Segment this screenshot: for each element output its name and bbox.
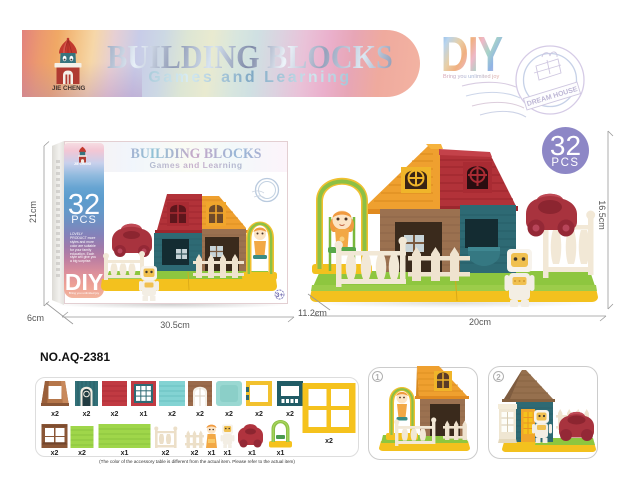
svg-text:x1: x1 (276, 450, 284, 457)
svg-text:x2: x2 (225, 411, 233, 418)
svg-text:x2: x2 (51, 411, 59, 418)
svg-text:x1: x1 (223, 450, 231, 457)
svg-text:x2: x2 (286, 411, 294, 418)
svg-text:x2: x2 (50, 450, 58, 457)
svg-text:x1: x1 (139, 411, 147, 418)
svg-text:3+: 3+ (276, 292, 284, 299)
svg-text:x2: x2 (255, 411, 263, 418)
svg-text:x2: x2 (196, 411, 204, 418)
svg-text:x2: x2 (78, 450, 86, 457)
svg-text:x2: x2 (168, 411, 176, 418)
svg-text:x1: x1 (248, 450, 256, 457)
svg-text:x2: x2 (161, 450, 169, 457)
svg-text:x2: x2 (82, 411, 90, 418)
svg-text:x2: x2 (110, 411, 118, 418)
svg-text:x1: x1 (120, 450, 128, 457)
svg-text:x2: x2 (190, 450, 198, 457)
svg-text:x2: x2 (325, 438, 333, 445)
svg-text:x1: x1 (207, 450, 215, 457)
